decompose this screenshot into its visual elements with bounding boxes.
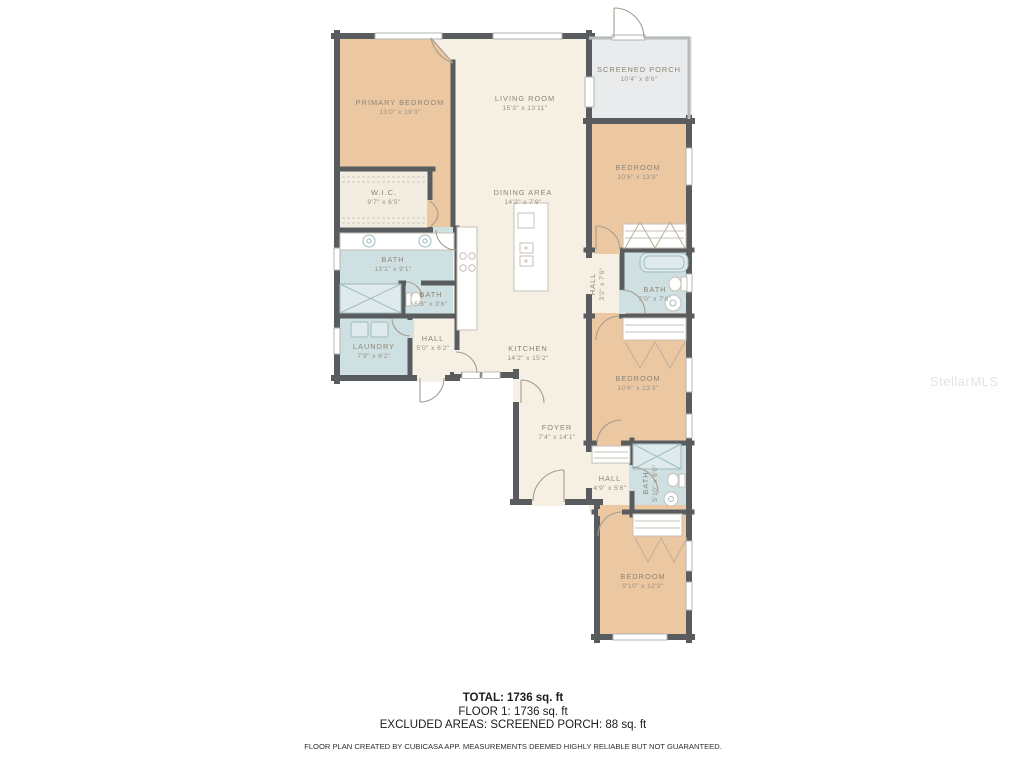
- toilet-icon: [681, 277, 687, 291]
- kitchen-island: [514, 203, 548, 291]
- window-living-top: [493, 33, 562, 39]
- dims-bedroom-e: 10'6" x 13'3": [617, 385, 659, 392]
- label-wic: W.I.C.: [371, 188, 397, 197]
- kitchen-counter: [457, 227, 477, 330]
- window-laundry-left: [334, 328, 340, 354]
- floor1-area: FLOOR 1: 1736 sq. ft: [113, 706, 913, 720]
- label-kitchen: KITCHEN: [508, 344, 547, 353]
- window-bedroom-se-bottom: [613, 634, 667, 640]
- dryer-icon: [371, 322, 388, 337]
- washer-icon: [351, 322, 368, 337]
- dims-bedroom-se: 9'10" x 12'9": [622, 583, 664, 590]
- excluded-areas: EXCLUDED AREAS: SCREENED PORCH: 88 sq. f…: [113, 719, 913, 733]
- dims-hall-east: 3'2" x 7'6": [599, 267, 606, 300]
- label-bath-primary: BATH: [381, 255, 404, 264]
- area-summary: TOTAL: 1736 sq. ft FLOOR 1: 1736 sq. ft …: [113, 692, 913, 751]
- stellar-mls-watermark: StellarMLS: [930, 374, 999, 389]
- label-hall-east: HALL: [588, 273, 597, 296]
- toilet-icon: [406, 293, 411, 306]
- dims-living-room: 15'3" x 13'11": [503, 105, 548, 112]
- window-primary-top: [375, 33, 442, 39]
- label-dining-area: DINING AREA: [494, 188, 553, 197]
- label-screened-porch: SCREENED PORCH: [597, 65, 681, 74]
- window-bath-left: [334, 248, 340, 270]
- door-porch: [614, 8, 644, 38]
- sink-icon: [664, 492, 678, 506]
- porch-door-opening: [612, 35, 645, 40]
- label-bedroom-ne: BEDROOM: [615, 163, 660, 172]
- floor-plan: PRIMARY BEDROOM 13'0" x 19'3" LIVING ROO…: [0, 0, 1024, 768]
- dims-bath-east: 7'0" x 7'6": [638, 296, 671, 303]
- dims-primary-bedroom: 13'0" x 19'3": [379, 109, 421, 116]
- label-primary-bedroom: PRIMARY BEDROOM: [356, 98, 445, 107]
- dims-dining-area: 14'2" x 7'9": [504, 199, 542, 206]
- dims-bath-small: 5'8" x 3'6": [414, 301, 447, 308]
- window-bedroom-e-1: [686, 358, 692, 392]
- dims-hall-south: 4'9" x 5'6": [593, 485, 626, 492]
- window-bedroom-ne: [686, 148, 692, 185]
- label-living-room: LIVING ROOM: [495, 94, 555, 103]
- dims-hall-west: 5'0" x 6'2": [416, 345, 449, 352]
- dims-wic: 9'7" x 6'5": [367, 199, 400, 206]
- closet-bedroom-se: [633, 514, 682, 536]
- porch-slider-door: [585, 77, 594, 107]
- total-area: TOTAL: 1736 sq. ft: [113, 692, 913, 706]
- dims-laundry: 7'9" x 6'2": [357, 353, 390, 360]
- window-bedroom-se-2: [686, 582, 692, 610]
- label-hall-south: HALL: [599, 474, 622, 483]
- window-bedroom-e-2: [686, 414, 692, 438]
- closet-bedroom-e: [623, 318, 686, 340]
- label-bedroom-se: BEDROOM: [620, 572, 665, 581]
- label-foyer: FOYER: [542, 423, 572, 432]
- closet-hall-south: [592, 446, 630, 463]
- toilet-icon: [679, 474, 685, 487]
- entry-door-panel: [482, 372, 500, 379]
- dims-bedroom-ne: 10'6" x 13'9": [617, 174, 659, 181]
- dims-bath-primary: 13'1" x 9'1": [374, 266, 412, 273]
- window-bedroom-se-1: [686, 541, 692, 571]
- disclaimer: FLOOR PLAN CREATED BY CUBICASA APP. MEAS…: [113, 742, 913, 751]
- label-bath-south: BATH: [641, 471, 650, 494]
- dims-foyer: 7'4" x 14'1": [538, 434, 576, 441]
- dims-kitchen: 14'2" x 15'2": [507, 355, 549, 362]
- dims-bath-south: 5'10" x 8'0": [652, 464, 659, 502]
- label-bedroom-e: BEDROOM: [615, 374, 660, 383]
- label-laundry: LAUNDRY: [353, 342, 395, 351]
- label-bath-small: BATH: [419, 290, 442, 299]
- dims-screened-porch: 10'4" x 8'6": [620, 76, 658, 83]
- label-bath-east: BATH: [643, 285, 666, 294]
- label-hall-west: HALL: [422, 334, 445, 343]
